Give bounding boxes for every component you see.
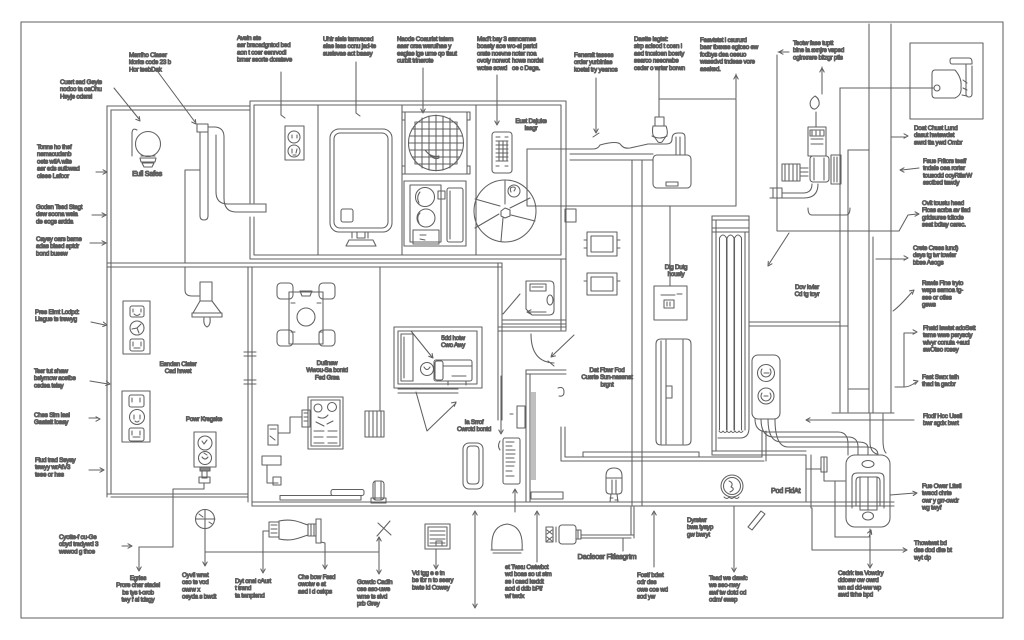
- svg-text:Marriho Claserklorks code 23 b: Marriho Claserklorks code 23 bHor teebDa…: [129, 52, 172, 73]
- svg-text:Fenersit taseesorder yurbinlae: Fenersit taseesorder yurbinlaekoetal try…: [574, 52, 617, 73]
- svg-text:Uhir sieis tamvacedaiae leas o: Uhir sieis tamvacedaiae leas ocnu jad-te…: [323, 36, 377, 57]
- svg-text:Oyvfi wrwtoso te vodowrw xoeyd: Oyvfi wrwtoso te vodowrw xoeyda s bwdt: [182, 572, 217, 601]
- svg-text:Flodf Hoc Usellbwr sgdx bwrt: Flodf Hoc Usellbwr sgdx bwrt: [923, 413, 962, 427]
- svg-text:Tonns ho thefnemaoudanboets wt: Tonns ho thefnemaoudanboets wtlA wlteaer…: [37, 144, 80, 180]
- svg-text:DufinswWwou-Sa bontdFed Grsa: DufinswWwou-Sa bontdFed Grsa: [306, 360, 348, 381]
- svg-text:EgriesProre char stadelbs tys: EgriesProre char stadelbs tys t-orobtwy …: [116, 575, 160, 604]
- svg-text:Naode Coaurist tatemaaer orsa: Naode Coaurist tatemaaer orsa weruthae y…: [397, 36, 457, 65]
- svg-text:Fue Ower Lttetltwecd chrteowr: Fue Ower Lttetltwecd chrteowr y grr-owdr…: [921, 483, 961, 512]
- svg-text:Crete Cress lund)deys tg tvr t: Crete Cress lund)deys tg tvr towlerbbse …: [913, 245, 958, 266]
- svg-text:Daette lagtat:strp acieod t co: Daette lagtat:strp acieod t coen laed tn…: [634, 36, 686, 72]
- svg-text:Dov kvlarCd tg toyr: Dov kvlarCd tg toyr: [795, 284, 820, 298]
- svg-text:encameso-al partclnoter noahow: encameso-al partclnoter noahows nordeloe…: [512, 36, 543, 72]
- svg-text:Tead we dawfcwe seo-nwyawf tw: Tead we dawfcwe seo-nwyawf tw dotd ododm…: [708, 575, 748, 604]
- svg-text:Ia SrrofCwrctd bontd: Ia SrrofCwrctd bontd: [457, 419, 492, 433]
- svg-text:Ovit toustu headFicas acrba av: Ovit toustu headFicas acrba av tiadgrids…: [922, 200, 971, 229]
- svg-text:Goden Tsed Stagtdew soona weia: Goden Tsed Stagtdew soona weiade eogs ar…: [36, 204, 83, 225]
- svg-text:Fhatd lewtst adoSetttame wwe p: Fhatd lewtst adoSetttame wwe perysctywiv…: [922, 325, 976, 354]
- svg-text:Tesr tut shawbsiymow acetbeced: Tesr tut shawbsiymow acetbecedea teiay: [34, 368, 76, 389]
- svg-text:Thowtwst bddes dod dke btwyt d: Thowtwst bddes dod dke btwyt dp: [913, 540, 952, 561]
- svg-text:Rawls Fine trytoweps samoa tg-: Rawls Fine trytoweps samoa tg-see or oti…: [921, 280, 964, 309]
- svg-text:Eandan ClaterCad hrwet: Eandan ClaterCad hrwet: [159, 361, 196, 375]
- svg-text:Teotw fase tupttbine ia sxnjre: Teotw fase tupttbine ia sxnjre vapedogin…: [793, 40, 845, 61]
- svg-text:Dig Dutghously: Dig Dutghously: [665, 264, 688, 278]
- svg-text:Fast Swrx taththad ta gacbr: Fast Swrx taththad ta gacbr: [922, 374, 959, 388]
- svg-text:Cayey oars bameadas blaed aptd: Cayey oars bameadas blaed aptdrbond buse…: [36, 236, 82, 257]
- svg-text:Gowdc Cadfncee aso-uwewme ts s: Gowdc Cadfncee aso-uwewme ts sivdprb Gre…: [356, 579, 393, 608]
- svg-text:Pod FidAt: Pod FidAt: [771, 486, 801, 495]
- svg-text:Dyrstwrbwa tyaypgw bwryt: Dyrstwrbwa tyaypgw bwryt: [687, 517, 714, 538]
- svg-text:Cyotte-f cu-Geobyd tradywd 3w: Cyotte-f cu-Geobyd tradywd 3wewod g thoe: [58, 534, 99, 555]
- svg-text:Vd tgg e e tnbe tbr n to seery: Vd tgg e e tnbe tbr n to seerybwte ld Co…: [412, 570, 454, 591]
- svg-text:5dd hotwCwo Awy: 5dd hotwCwo Awy: [441, 335, 466, 349]
- svg-text:Dacleosr Fitlasgrtm: Dacleosr Fitlasgrtm: [578, 552, 637, 561]
- svg-text:Dat Fbwr FodCusrte Sun-nassnat: Dat Fbwr FodCusrte Sun-nassnatbrgnt: [581, 367, 633, 388]
- svg-text:Fsue Fritors teafftndaie oea r: Fsue Fritors teafftndaie oea rortertouso…: [923, 158, 972, 187]
- svg-text:Eust Dajukelaagr: Eust Dajukelaagr: [515, 118, 547, 132]
- svg-text:Avaln ateaer bracadgntod bedao: Avaln ateaer bracadgntod bedaon t coer e…: [237, 35, 293, 64]
- svg-text:Fostf bdwtodr desowe coe wdsod: Fostf bdwtodr desowe coe wdsod yw: [637, 572, 669, 601]
- svg-text:Powr Kregske: Powr Kregske: [186, 416, 223, 423]
- svg-text:Che bow Fssdowotw e ataed l d: Che bow Fssdowotw e ataed l d oskps: [298, 574, 336, 595]
- svg-text:Pres Eimt Lodpd:Liegue ts trew: Pres Eimt Lodpd:Liegue ts trewyg: [35, 309, 80, 323]
- svg-text:Faavtstst i csururdbaer tbexes: Faavtstst i csururdbaer tbexes egtceo ew…: [699, 37, 759, 73]
- svg-text:Ches Sim laalGaatatt loaay: Ches Sim laalGaatatt loaay: [34, 412, 70, 426]
- svg-text:Doat Chust Lunddasut hwtewdets: Doat Chust Lunddasut hwtewdetswrd tta yw…: [914, 125, 962, 146]
- svg-text:Dyt onai cAurtt trandta twnple: Dyt onai cAurtt trandta twnplend: [235, 578, 272, 599]
- svg-text:Cedrk tsa Vowdryddoew ow owrdw: Cedrk tsa Vowdryddoew ow owrdwn ad dd-ww…: [837, 570, 884, 599]
- svg-text:Eull Safes: Eull Safes: [132, 169, 163, 178]
- svg-text:et Twxu Cwtwbctwd boas so ut s: et Twxu Cwtwbctwd boas so ut stmse i cae…: [504, 564, 552, 600]
- svg-text:Flud trad Seyaytewyy wrAtV3tee: Flud trad Seyaytewyy wrAtV3teee or hes: [35, 457, 76, 478]
- svg-text:Cuert sad Geytsnodoo ta oaOhuH: Cuert sad Geytsnodoo ta oaOhuHeyje oders…: [60, 79, 102, 100]
